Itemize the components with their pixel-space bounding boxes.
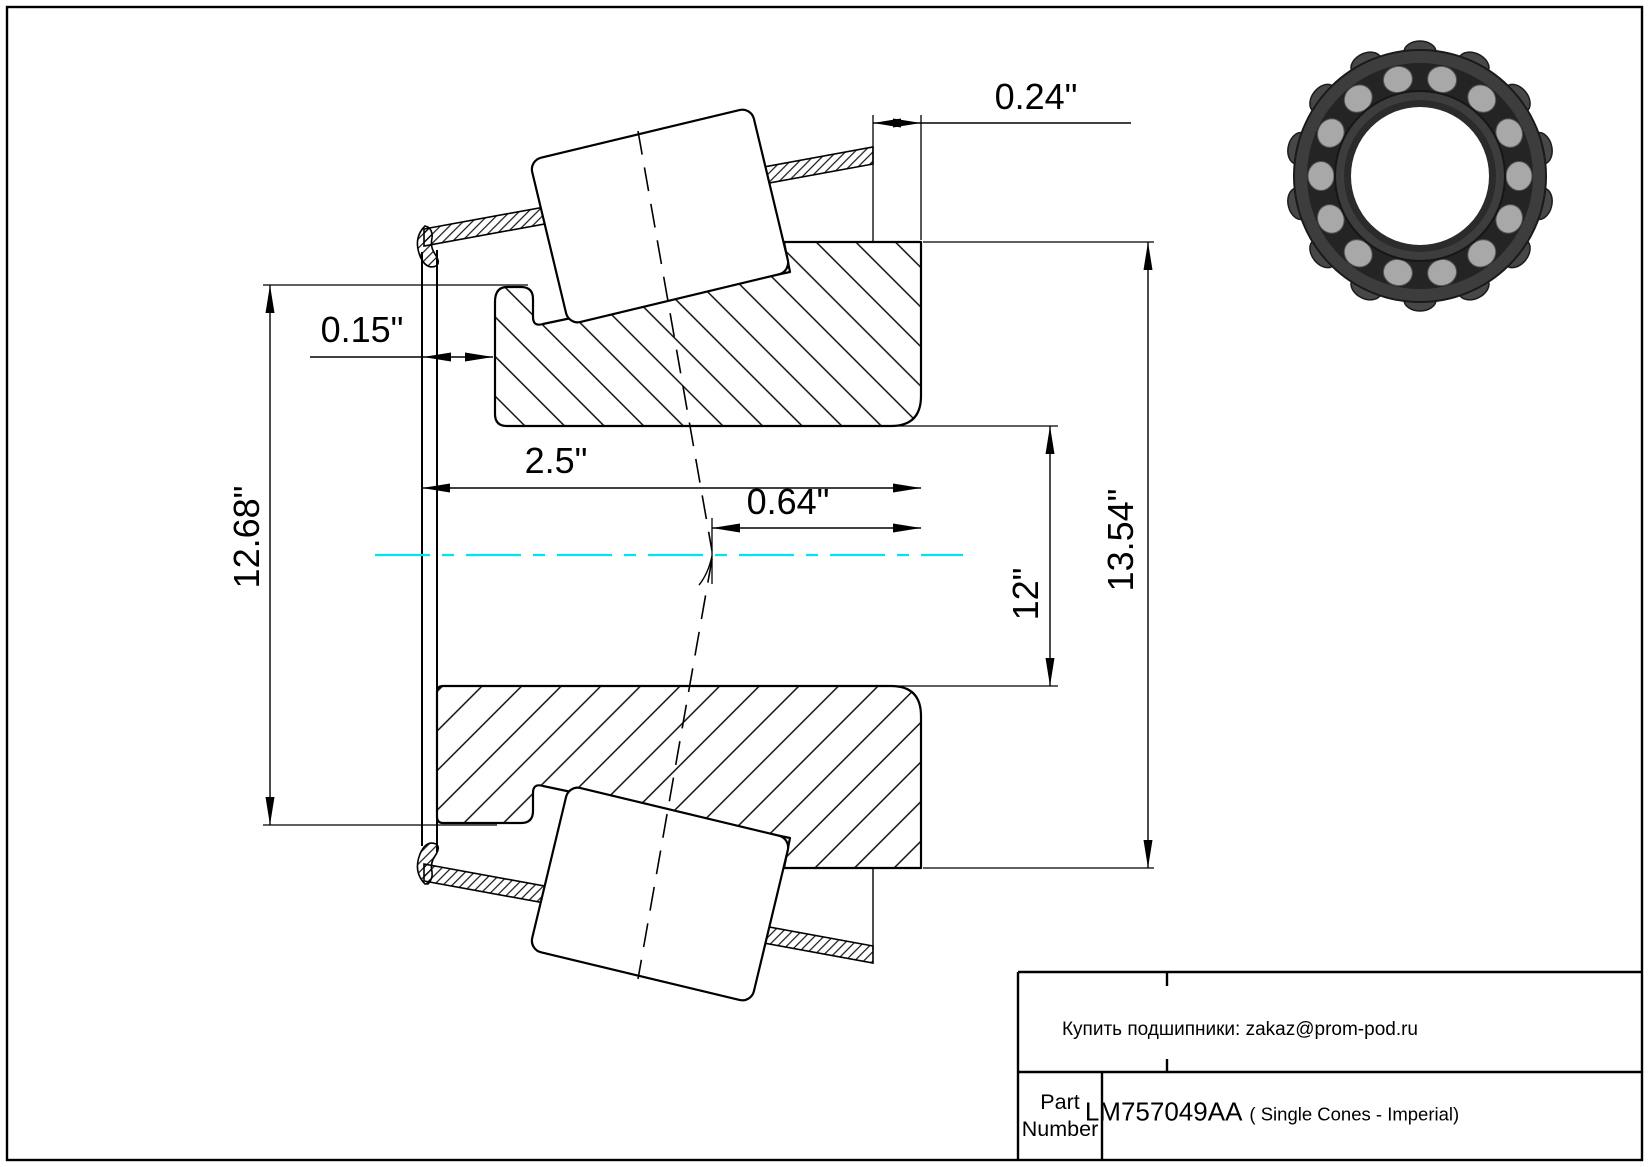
dim-front-rib-diameter: 12.68" bbox=[226, 486, 268, 589]
part-number-suffix: ( Single Cones - Imperial) bbox=[1249, 1104, 1459, 1126]
dim-cone-width: 2.5" bbox=[525, 440, 588, 482]
dim-front-offset: 0.15" bbox=[321, 309, 404, 351]
drawing-page: 0.24" 0.15" 2.5" 0.64" 12" 13.54" 12.68"… bbox=[0, 0, 1649, 1167]
dim-cage-back-offset: 0.24" bbox=[995, 76, 1078, 118]
dim-back-rib-diameter: 13.54" bbox=[1100, 489, 1142, 592]
part-number: LM757049AA bbox=[1085, 1097, 1243, 1128]
dim-bore-diameter: 12" bbox=[1005, 568, 1047, 621]
bearing-photo bbox=[1285, 41, 1555, 311]
title-block bbox=[1018, 972, 1642, 1160]
contact-line: Купить подшипники: zakaz@prom-pod.ru bbox=[1062, 1019, 1418, 1041]
dim-effective-center: 0.64" bbox=[747, 481, 830, 523]
bearing-bore bbox=[1351, 107, 1489, 245]
part-number-value: LM757049AA ( Single Cones - Imperial) bbox=[1085, 1097, 1459, 1128]
